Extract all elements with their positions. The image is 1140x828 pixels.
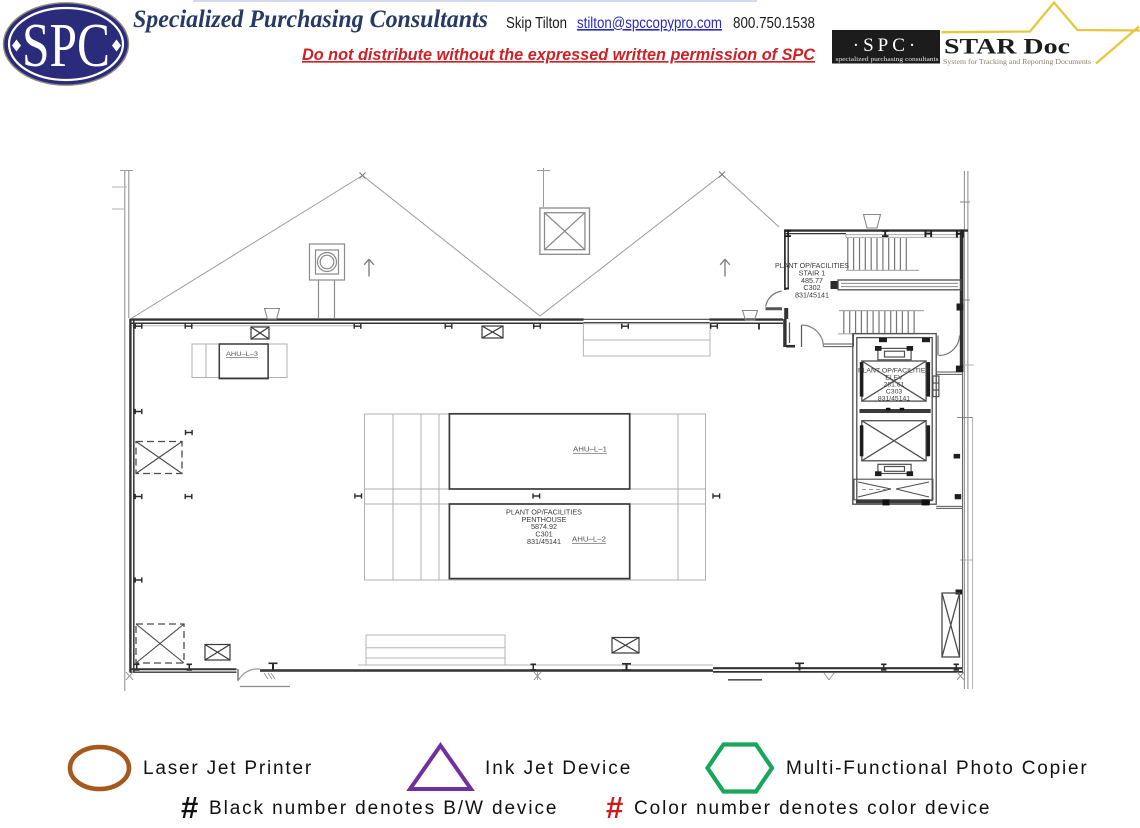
svg-text:Ink Jet Device: Ink Jet Device: [485, 758, 632, 779]
svg-text:Color number denotes color dev: Color number denotes color device: [634, 798, 991, 819]
svg-text:#: #: [181, 790, 198, 825]
svg-text:stilton@spccopypro.com: stilton@spccopypro.com: [577, 15, 722, 32]
svg-text:Black number denotes B/W devic: Black number denotes B/W device: [209, 798, 558, 819]
svg-text:Skip Tilton: Skip Tilton: [506, 15, 567, 32]
svg-text:·SPC·: ·SPC·: [853, 35, 919, 56]
svg-text:Do not distribute without the: Do not distribute without the expressed …: [302, 46, 816, 64]
svg-text:800.750.1538: 800.750.1538: [733, 15, 815, 32]
svg-text:AHU–L–3: AHU–L–3: [226, 351, 258, 358]
svg-text:ELEV: ELEV: [885, 375, 903, 382]
svg-text:831/45141: 831/45141: [527, 537, 561, 546]
svg-text:AHU–L–2: AHU–L–2: [572, 537, 606, 544]
svg-text:#: #: [606, 790, 623, 825]
svg-text:281.61: 281.61: [884, 382, 905, 389]
svg-text:PLANT OP/FACILITIES: PLANT OP/FACILITIES: [858, 368, 930, 375]
svg-text:Specialized Purchasing Consult: Specialized Purchasing Consultants: [133, 6, 488, 33]
svg-text:831/45141: 831/45141: [795, 291, 829, 300]
svg-text:System for Tracking and Report: System for Tracking and Reporting Docume…: [943, 57, 1091, 66]
svg-text:831/45141: 831/45141: [878, 396, 910, 403]
svg-text:Laser Jet Printer: Laser Jet Printer: [143, 758, 313, 779]
svg-text:SPC: SPC: [22, 12, 110, 80]
svg-text:specialized purchasing consult: specialized purchasing consultants: [836, 56, 939, 63]
svg-text:AHU–L–1: AHU–L–1: [573, 447, 607, 454]
svg-text:C303: C303: [886, 389, 902, 396]
svg-text:STAR Doc: STAR Doc: [944, 34, 1070, 59]
svg-text:Multi-Functional Photo Copier: Multi-Functional Photo Copier: [786, 758, 1088, 779]
